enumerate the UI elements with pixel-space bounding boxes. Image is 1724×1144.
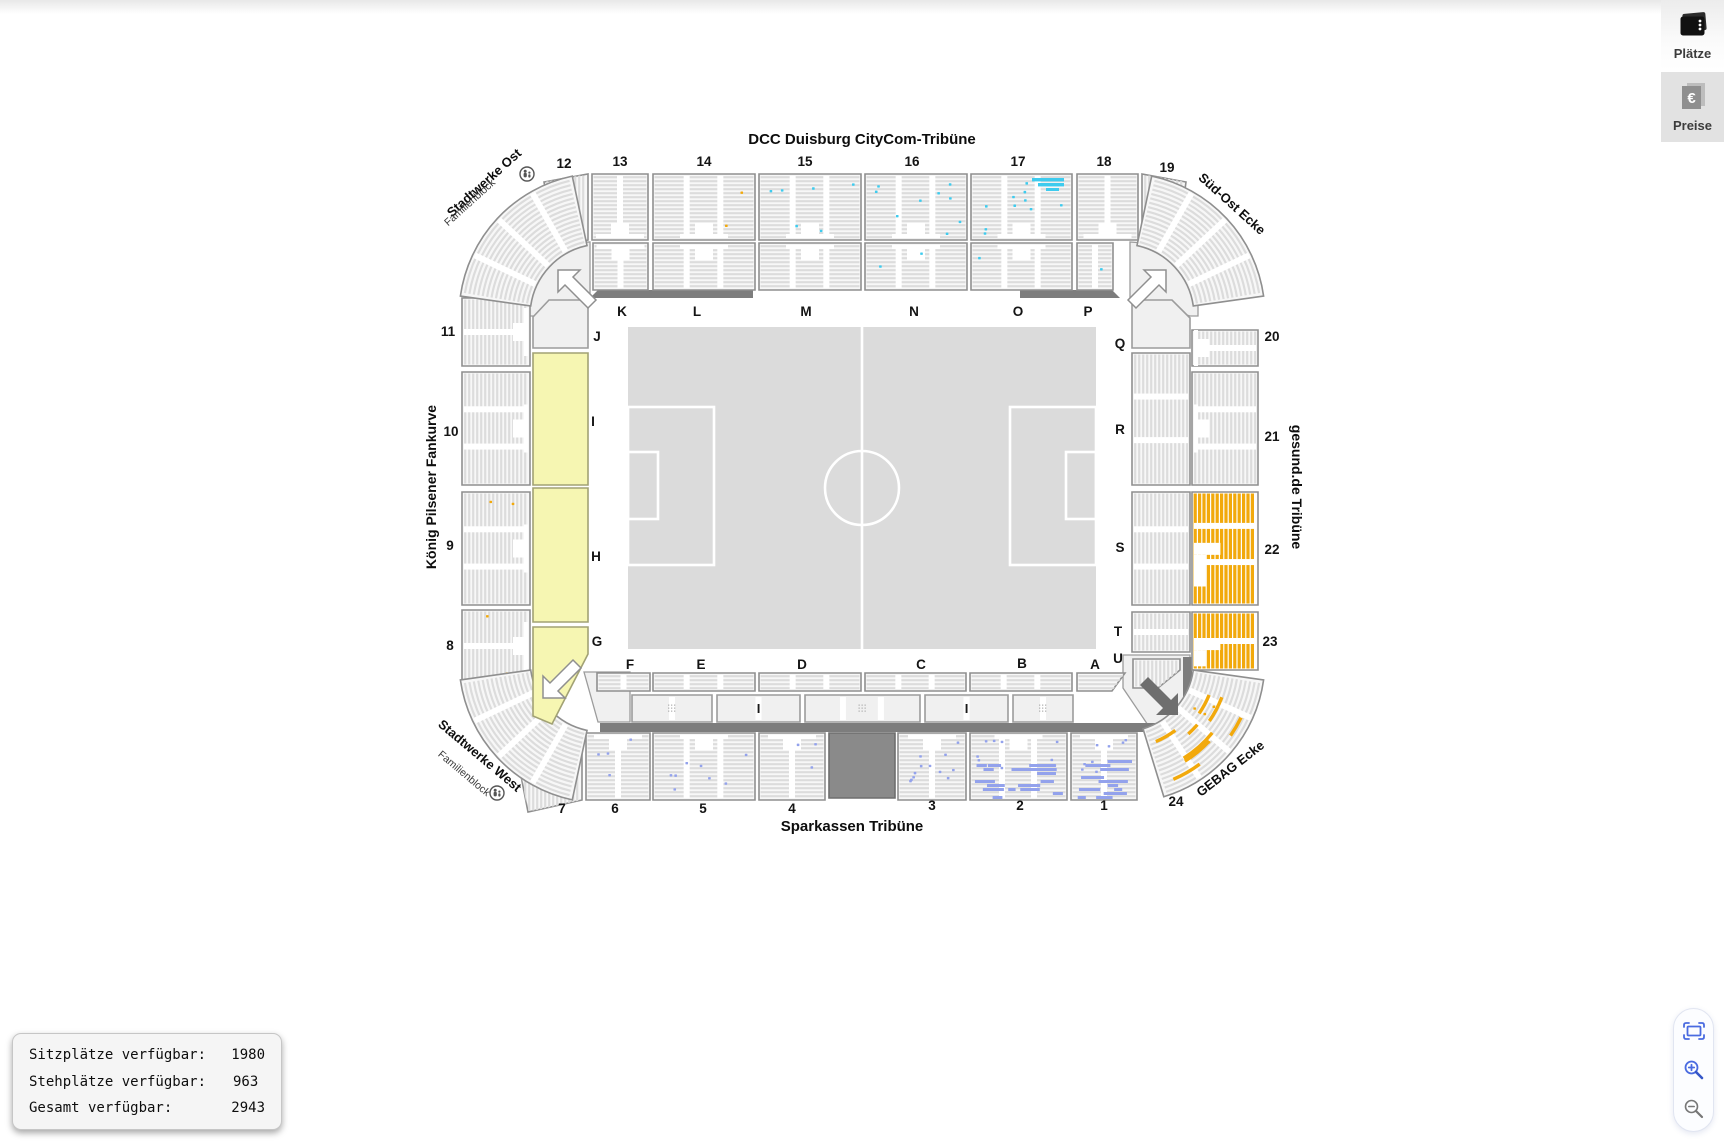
block-label-F: F xyxy=(626,657,634,672)
block-label-21: 21 xyxy=(1264,429,1280,444)
pitch-layer xyxy=(628,327,1096,649)
total-available-value: 2943 xyxy=(231,1100,265,1116)
block-label-2: 2 xyxy=(1016,798,1024,813)
block-O[interactable] xyxy=(971,243,1072,290)
total-available-label: Gesamt verfügbar: xyxy=(29,1100,231,1116)
gantry-label: I xyxy=(757,701,761,716)
block-label-E: E xyxy=(696,657,705,672)
block-label-M: M xyxy=(800,304,811,319)
block-mb3[interactable] xyxy=(805,695,920,722)
block-mb5[interactable] xyxy=(1013,695,1073,722)
fit-view-icon xyxy=(1682,1021,1706,1041)
block-21[interactable] xyxy=(1192,372,1258,485)
stadium-map[interactable]: II12345678910111213141516171819202122232… xyxy=(0,0,1724,1144)
block-R[interactable] xyxy=(1132,353,1190,485)
block-I[interactable] xyxy=(533,353,588,485)
block-label-S: S xyxy=(1115,540,1124,555)
block-label-D: D xyxy=(797,657,807,672)
block-10[interactable] xyxy=(462,372,530,485)
zoom-in-icon xyxy=(1683,1059,1705,1081)
block-mb1[interactable] xyxy=(632,695,712,722)
block-J[interactable] xyxy=(533,300,588,348)
block-E[interactable] xyxy=(653,673,755,691)
seats-available-label: Sitzplätze verfügbar: xyxy=(29,1047,231,1063)
block-15[interactable] xyxy=(759,174,861,240)
block-label-T: T xyxy=(1114,624,1123,639)
block-label-1: 1 xyxy=(1100,798,1108,813)
walkway-band xyxy=(590,290,753,298)
block-C[interactable] xyxy=(865,673,966,691)
block-label-G: G xyxy=(592,634,603,649)
block-5[interactable] xyxy=(653,733,755,800)
block-H[interactable] xyxy=(533,488,588,622)
block-label-18: 18 xyxy=(1096,154,1112,169)
block-mb4[interactable]: I xyxy=(925,695,1008,722)
family-icon xyxy=(520,167,534,181)
block-18[interactable] xyxy=(1077,174,1138,240)
block-closed-block xyxy=(829,733,895,798)
block-label-20: 20 xyxy=(1264,329,1279,344)
availability-row-seats: Sitzplätze verfügbar: 1980 xyxy=(29,1047,265,1063)
block-label-Q: Q xyxy=(1115,336,1126,351)
block-label-24: 24 xyxy=(1168,794,1184,809)
block-label-14: 14 xyxy=(696,154,712,169)
walkway-band xyxy=(1020,290,1120,298)
gantry-label: I xyxy=(965,701,969,716)
block-label-8: 8 xyxy=(446,638,454,653)
block-label-12: 12 xyxy=(556,156,571,171)
fit-view-button[interactable] xyxy=(1681,1018,1707,1044)
block-14[interactable] xyxy=(653,174,755,240)
stand-label-east: gesund.de Tribüne xyxy=(1289,425,1305,550)
seats-available-value: 1980 xyxy=(231,1047,265,1063)
prices-button-label: Preise xyxy=(1673,118,1712,133)
block-label-17: 17 xyxy=(1010,154,1025,169)
availability-row-total: Gesamt verfügbar: 2943 xyxy=(29,1100,265,1116)
zoom-out-button[interactable] xyxy=(1681,1096,1707,1122)
block-label-A: A xyxy=(1090,657,1100,672)
block-label-P: P xyxy=(1083,304,1092,319)
zoom-in-button[interactable] xyxy=(1681,1057,1707,1083)
block-T[interactable] xyxy=(1132,612,1190,652)
block-label-6: 6 xyxy=(611,801,619,816)
places-view-button[interactable]: Plätze xyxy=(1661,0,1724,70)
block-A[interactable] xyxy=(1077,673,1125,691)
block-23[interactable] xyxy=(1192,612,1258,670)
block-S[interactable] xyxy=(1132,492,1190,605)
block-label-N: N xyxy=(909,304,919,319)
seatmap-icon xyxy=(1678,12,1708,41)
block-2[interactable] xyxy=(970,733,1067,800)
block-label-K: K xyxy=(617,304,627,319)
block-label-4: 4 xyxy=(788,801,796,816)
block-9[interactable] xyxy=(462,492,530,605)
block-label-H: H xyxy=(591,549,601,564)
stand-label-west: König Pilsener Fankurve xyxy=(423,405,439,569)
block-B[interactable] xyxy=(970,673,1072,691)
block-label-R: R xyxy=(1115,422,1125,437)
block-label-5: 5 xyxy=(699,801,707,816)
block-L[interactable] xyxy=(653,243,755,290)
block-16[interactable] xyxy=(865,174,967,240)
block-label-C: C xyxy=(916,657,926,672)
block-4[interactable] xyxy=(759,733,825,800)
block-label-I: I xyxy=(591,414,595,429)
block-label-22: 22 xyxy=(1264,542,1279,557)
stand-label-south: Sparkassen Tribüne xyxy=(781,818,924,835)
block-17[interactable] xyxy=(971,174,1072,240)
block-label-J: J xyxy=(593,329,601,344)
block-3[interactable] xyxy=(898,733,966,800)
block-label-U: U xyxy=(1113,651,1123,666)
view-toolbar: Plätze € Preise xyxy=(1661,0,1724,142)
places-button-label: Plätze xyxy=(1674,46,1712,61)
euro-prices-icon: € xyxy=(1679,83,1707,113)
block-label-13: 13 xyxy=(612,154,628,169)
standing-available-label: Stehplätze verfügbar: xyxy=(29,1074,233,1090)
block-label-15: 15 xyxy=(797,154,813,169)
block-D[interactable] xyxy=(759,673,861,691)
block-M[interactable] xyxy=(759,243,861,290)
svg-text:€: € xyxy=(1687,90,1696,107)
block-K[interactable] xyxy=(593,243,648,290)
block-label-23: 23 xyxy=(1262,634,1278,649)
block-22[interactable] xyxy=(1192,492,1258,605)
block-label-19: 19 xyxy=(1159,160,1174,175)
block-1[interactable] xyxy=(1071,733,1137,800)
zoom-controls xyxy=(1673,1008,1714,1132)
block-label-7: 7 xyxy=(558,801,566,816)
prices-view-button[interactable]: € Preise xyxy=(1661,72,1724,142)
block-20[interactable] xyxy=(1192,324,1258,372)
block-label-L: L xyxy=(693,304,701,319)
block-label-10: 10 xyxy=(443,424,458,439)
standing-available-value: 963 xyxy=(233,1074,258,1090)
family-icon xyxy=(490,786,504,800)
block-label-O: O xyxy=(1013,304,1024,319)
block-label-16: 16 xyxy=(904,154,920,169)
block-6[interactable] xyxy=(586,733,650,800)
block-label-9: 9 xyxy=(446,538,454,553)
availability-panel: Sitzplätze verfügbar: 1980 Stehplätze ve… xyxy=(12,1033,282,1130)
block-P[interactable] xyxy=(1077,243,1113,290)
block-N[interactable] xyxy=(865,243,967,290)
block-label-3: 3 xyxy=(928,798,936,813)
block-mb2[interactable]: I xyxy=(717,695,800,722)
block-F[interactable] xyxy=(597,673,650,691)
zoom-out-icon xyxy=(1683,1098,1705,1120)
block-13[interactable] xyxy=(592,174,648,240)
stand-label-north: DCC Duisburg CityCom-Tribüne xyxy=(748,131,976,148)
availability-row-standing: Stehplätze verfügbar: 963 xyxy=(29,1074,265,1090)
block-11[interactable] xyxy=(462,298,530,366)
block-label-11: 11 xyxy=(441,324,456,339)
block-label-B: B xyxy=(1017,656,1027,671)
